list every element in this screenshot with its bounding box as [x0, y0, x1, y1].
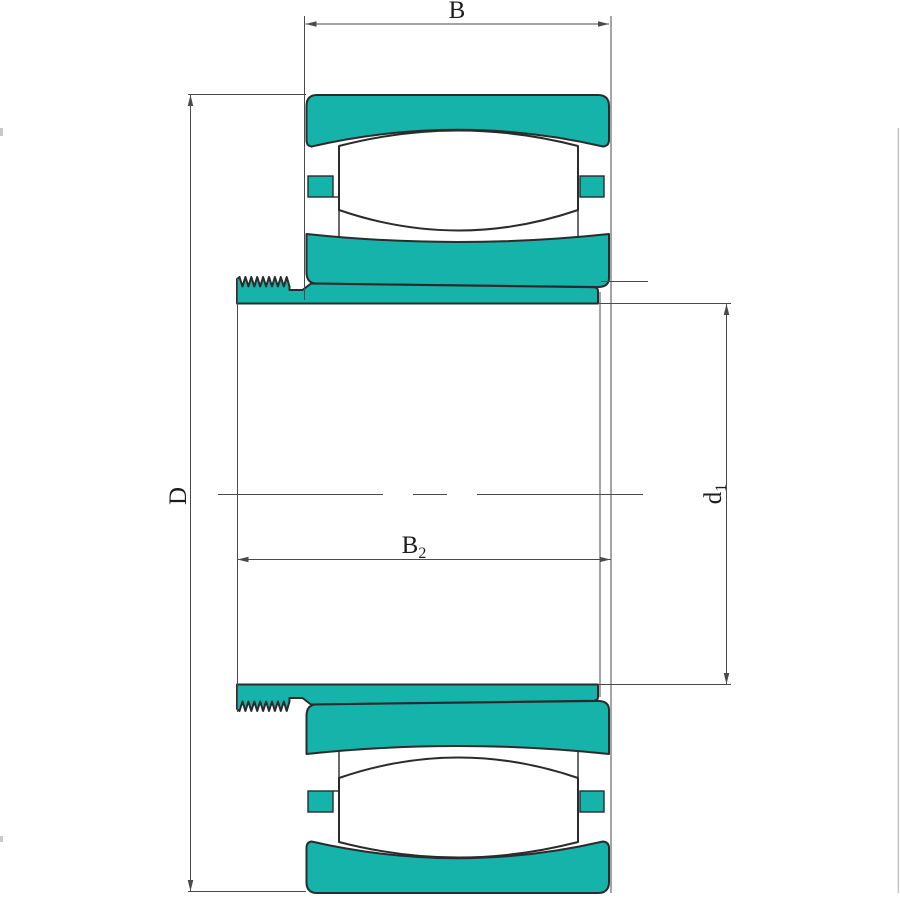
b2-arrow-right: [600, 557, 611, 563]
dimension-label-d: D: [165, 487, 192, 505]
inner-ring-bottom: [307, 701, 610, 754]
d1-arrow-top: [724, 304, 730, 315]
dimension-d: D: [165, 95, 306, 892]
dimension-label-b2: B2: [402, 532, 427, 562]
b2-arrow-left: [238, 557, 249, 563]
cage-section-top-left: [308, 176, 333, 197]
roller-bottom: [339, 758, 578, 858]
b-arrow-right: [598, 21, 609, 27]
left-edge-artifact-1: [0, 128, 3, 136]
d-arrow-top: [188, 95, 194, 106]
cage-section-bottom-left: [308, 791, 333, 812]
dimension-label-d1: d1: [700, 484, 730, 505]
dimension-label-b: B: [449, 0, 466, 24]
b-arrow-left: [306, 21, 317, 27]
cage-section-top-right: [580, 176, 604, 197]
d-arrow-bottom: [188, 880, 194, 891]
roller-top: [339, 131, 578, 231]
bottom-bearing-section: [307, 701, 610, 893]
cage-section-bottom-right: [580, 791, 604, 812]
drawing-canvas: B D B2 d1: [0, 0, 900, 900]
left-edge-artifact-2: [0, 836, 3, 842]
bearing-assembly-drawing: B D B2 d1: [0, 0, 900, 900]
inner-ring-top: [307, 234, 610, 287]
d1-arrow-bottom: [724, 673, 730, 684]
top-bearing-section: [307, 95, 610, 287]
